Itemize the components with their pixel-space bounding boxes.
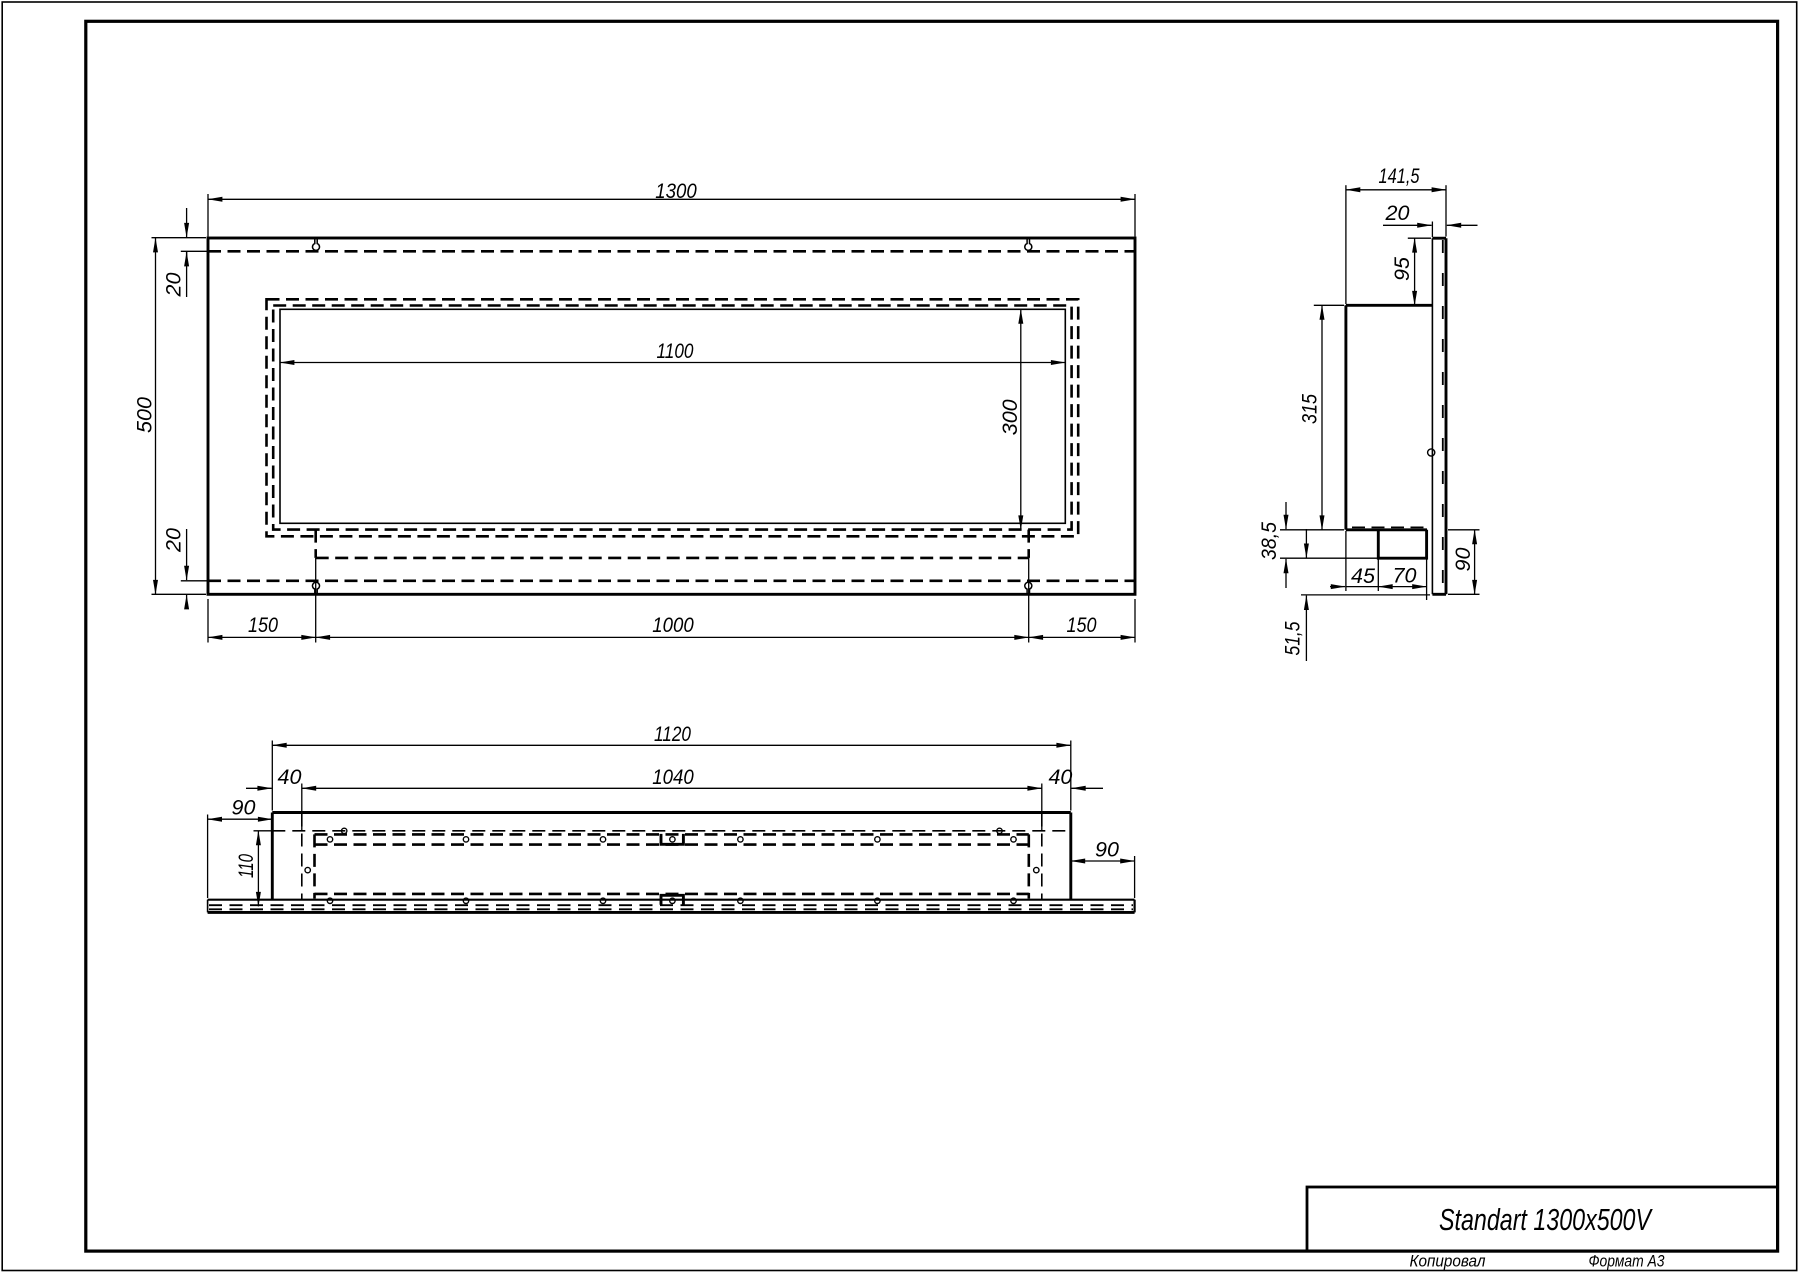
svg-text:1000: 1000 — [652, 613, 694, 637]
svg-text:40: 40 — [1048, 765, 1072, 789]
svg-text:20: 20 — [162, 528, 186, 553]
svg-text:1040: 1040 — [652, 765, 694, 789]
svg-text:45: 45 — [1351, 564, 1376, 588]
svg-text:1120: 1120 — [654, 722, 691, 746]
svg-text:20: 20 — [162, 273, 186, 298]
svg-text:90: 90 — [1451, 548, 1475, 572]
svg-text:1300: 1300 — [655, 179, 697, 203]
svg-text:315: 315 — [1298, 393, 1322, 424]
svg-text:150: 150 — [248, 613, 278, 637]
svg-text:95: 95 — [1390, 256, 1414, 281]
svg-text:Standart 1300x500V: Standart 1300x500V — [1439, 1202, 1653, 1237]
svg-text:141,5: 141,5 — [1379, 164, 1421, 188]
svg-text:Формат А3: Формат А3 — [1589, 1252, 1665, 1271]
svg-text:150: 150 — [1067, 613, 1097, 637]
svg-text:38,5: 38,5 — [1257, 521, 1281, 560]
svg-text:300: 300 — [998, 399, 1022, 435]
svg-text:20: 20 — [1385, 201, 1410, 225]
svg-text:Копировал: Копировал — [1410, 1252, 1486, 1271]
svg-text:51,5: 51,5 — [1281, 621, 1305, 656]
svg-text:1100: 1100 — [657, 339, 694, 363]
svg-text:110: 110 — [234, 854, 258, 878]
svg-text:500: 500 — [133, 397, 157, 433]
svg-text:70: 70 — [1393, 564, 1417, 588]
svg-text:40: 40 — [278, 765, 302, 789]
svg-text:90: 90 — [1095, 838, 1119, 862]
svg-text:90: 90 — [232, 796, 256, 820]
